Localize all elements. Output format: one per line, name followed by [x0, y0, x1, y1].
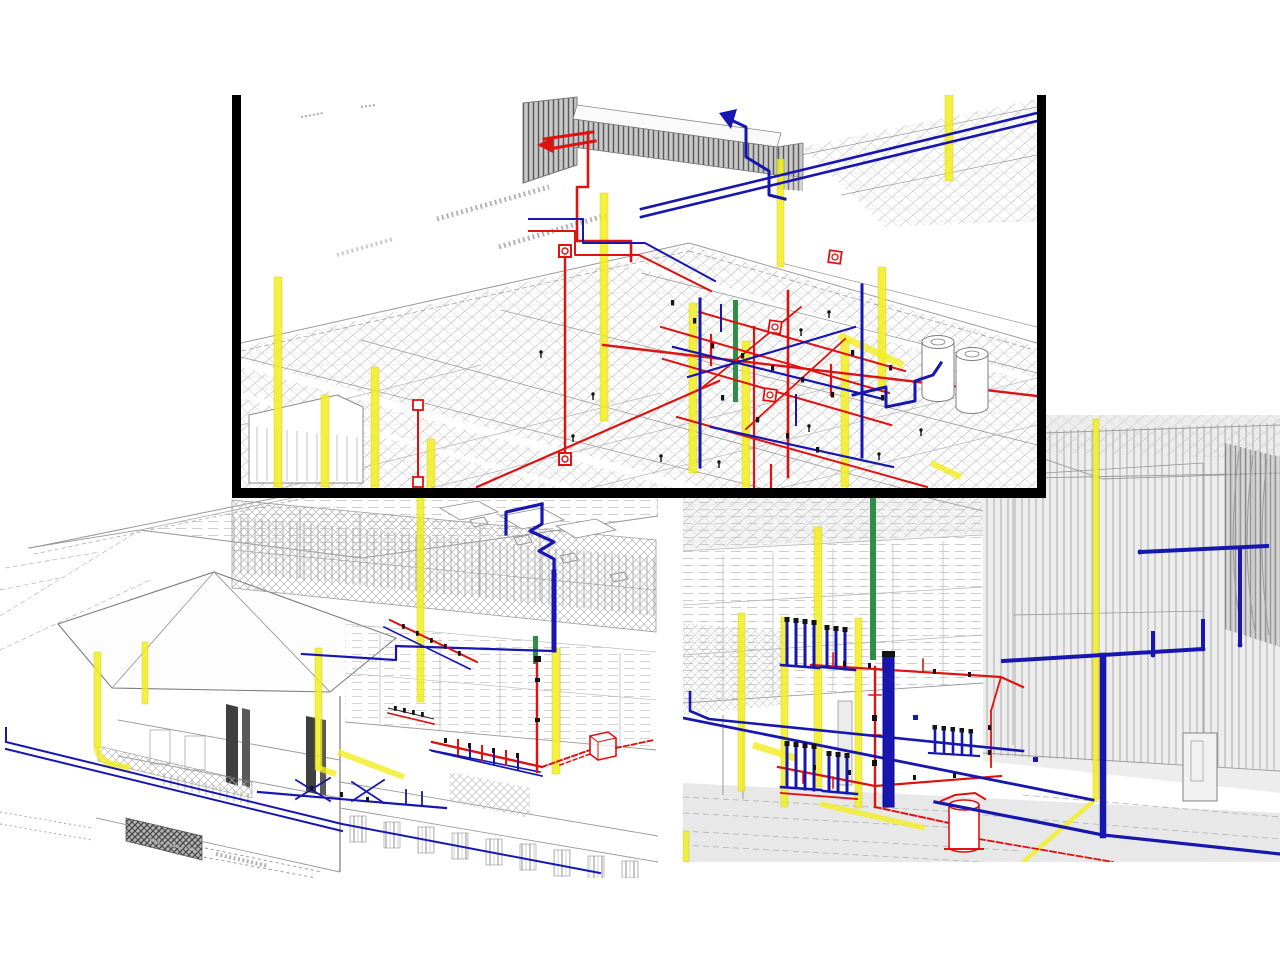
viewport-roof-axonometric: [232, 95, 1046, 498]
blue-manifold-group: [929, 725, 979, 756]
door-frame: [1183, 733, 1217, 801]
green-pipe-riser: [870, 475, 876, 660]
cooling-tower: [523, 97, 803, 191]
cad-view-collage: [0, 0, 1280, 960]
window-strip: [306, 716, 316, 794]
dark-louver-block: [126, 818, 202, 860]
green-pipe-riser: [733, 300, 738, 402]
facade-windows: [340, 772, 658, 878]
base-hatching: [0, 746, 322, 878]
mid-structure-band: [345, 624, 656, 750]
window-strip: [226, 704, 238, 786]
blue-column: [883, 655, 894, 807]
red-box-fitting: [590, 732, 616, 760]
roof-axonometric-drawing: [241, 95, 1037, 488]
seating-rows: [683, 535, 983, 715]
